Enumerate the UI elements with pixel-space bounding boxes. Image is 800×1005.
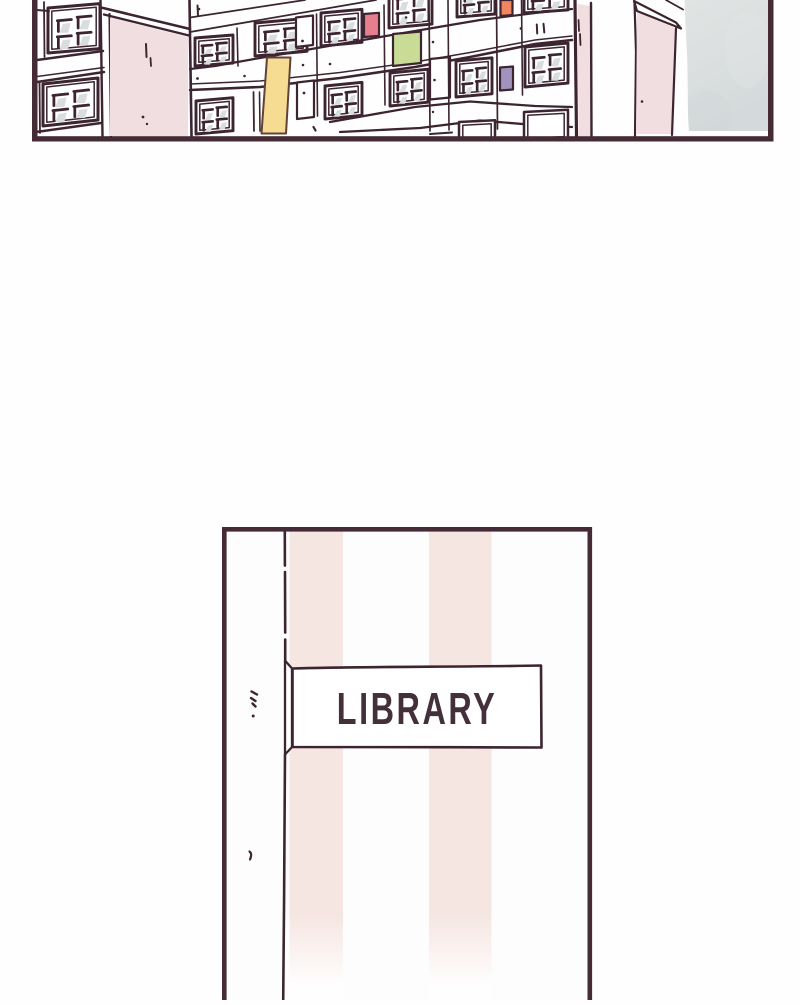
svg-text:LIBRARY: LIBRARY — [337, 683, 497, 734]
